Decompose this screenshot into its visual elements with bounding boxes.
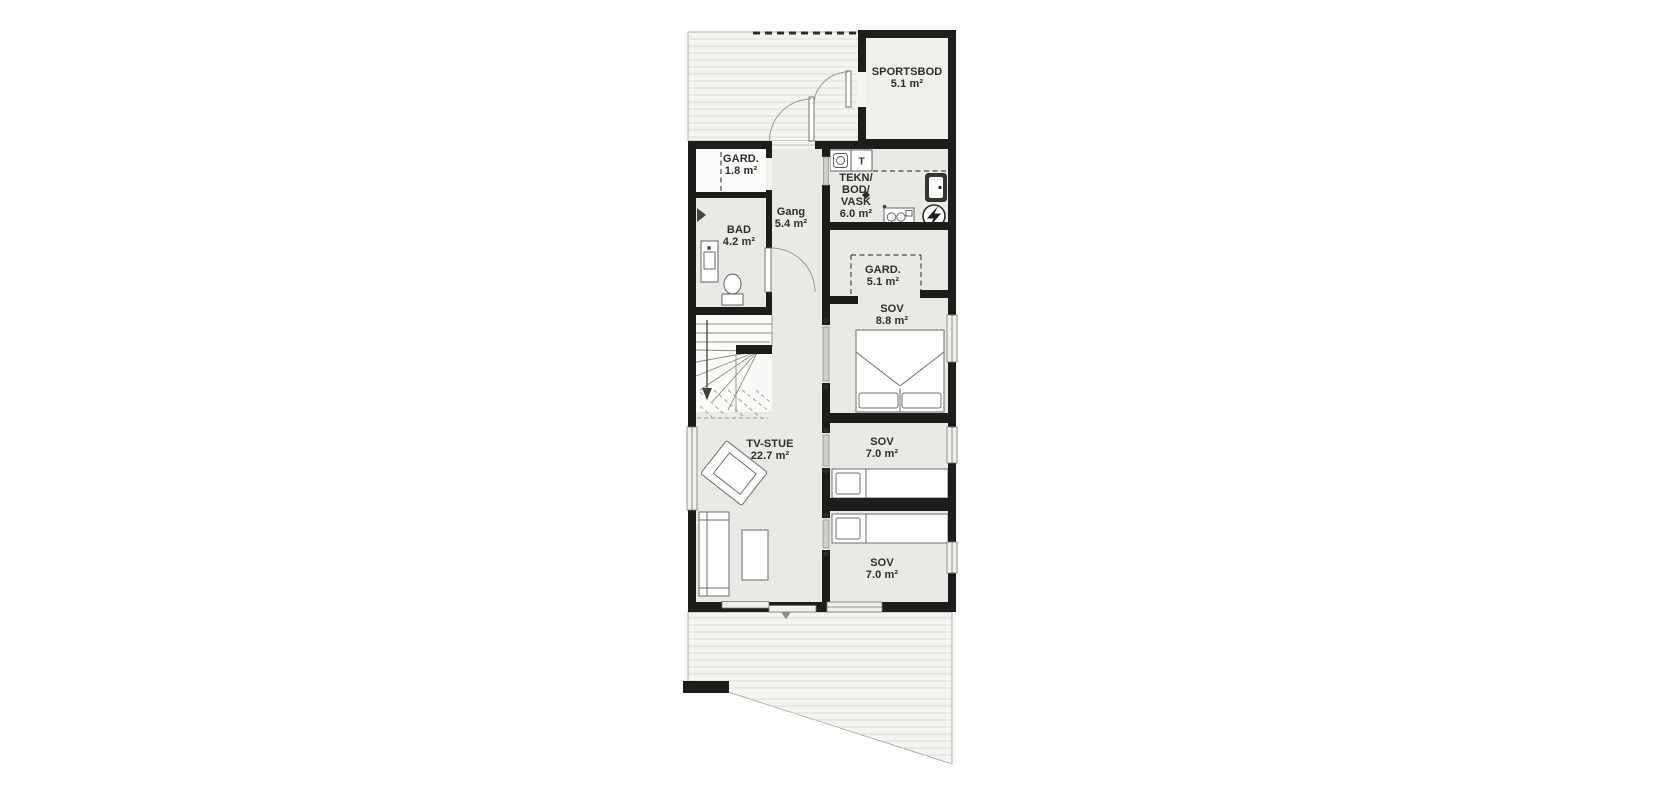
room-label-tv-stue: TV-STUE22.7 m² [746,438,793,462]
room-label-gard-entry: GARD.1.8 m² [723,153,759,177]
dryer-icon: T [851,150,872,171]
room-label-sov-2: SOV7.0 m² [866,436,898,460]
lower-deck-terrace [683,612,952,764]
toilet [722,274,743,305]
room-label-sov-3: SOV7.0 m² [866,557,898,581]
bathroom-door-leaf [765,248,771,292]
sportsbod-door-leaf [846,71,851,107]
tekn-door-leaf [824,157,829,185]
room-label-gard-sov: GARD.5.1 m² [865,264,901,288]
room-label-sportsbod: SPORTSBOD5.1 m² [872,66,943,90]
sofa [699,512,729,596]
room-label-gang: Gang5.4 m² [775,206,807,230]
sov2-door-leaf [823,435,829,466]
room-label-bad: BAD4.2 m² [723,224,755,248]
patio-sliding-door-panel-2 [769,606,816,613]
coffee-table [742,530,768,580]
svg-text:T: T [858,157,864,168]
deck-corner-wall [683,681,729,693]
sportsbod-door-gap [857,72,867,107]
floor-plan-graphic: T [0,0,1670,800]
washing-machine-icon [830,150,851,171]
sov-master-door-leaf [823,327,829,381]
single-bed-2 [832,514,948,543]
room-label-sov-master: SOV8.8 m² [876,303,908,327]
single-bed-1 [832,469,948,498]
floor-plan-canvas: T [0,0,1670,800]
upper-deck-terrace [688,32,862,141]
water-heater-icon [925,173,947,202]
patio-sliding-door-panel-1 [722,602,769,609]
entrance-door-leaf [809,97,814,141]
double-bed [856,330,944,412]
bathroom-sink [701,241,718,282]
sov3-door-leaf [823,520,829,548]
room-label-tekn: TEKN/BOD/ VASK6.0 m² [839,172,873,220]
